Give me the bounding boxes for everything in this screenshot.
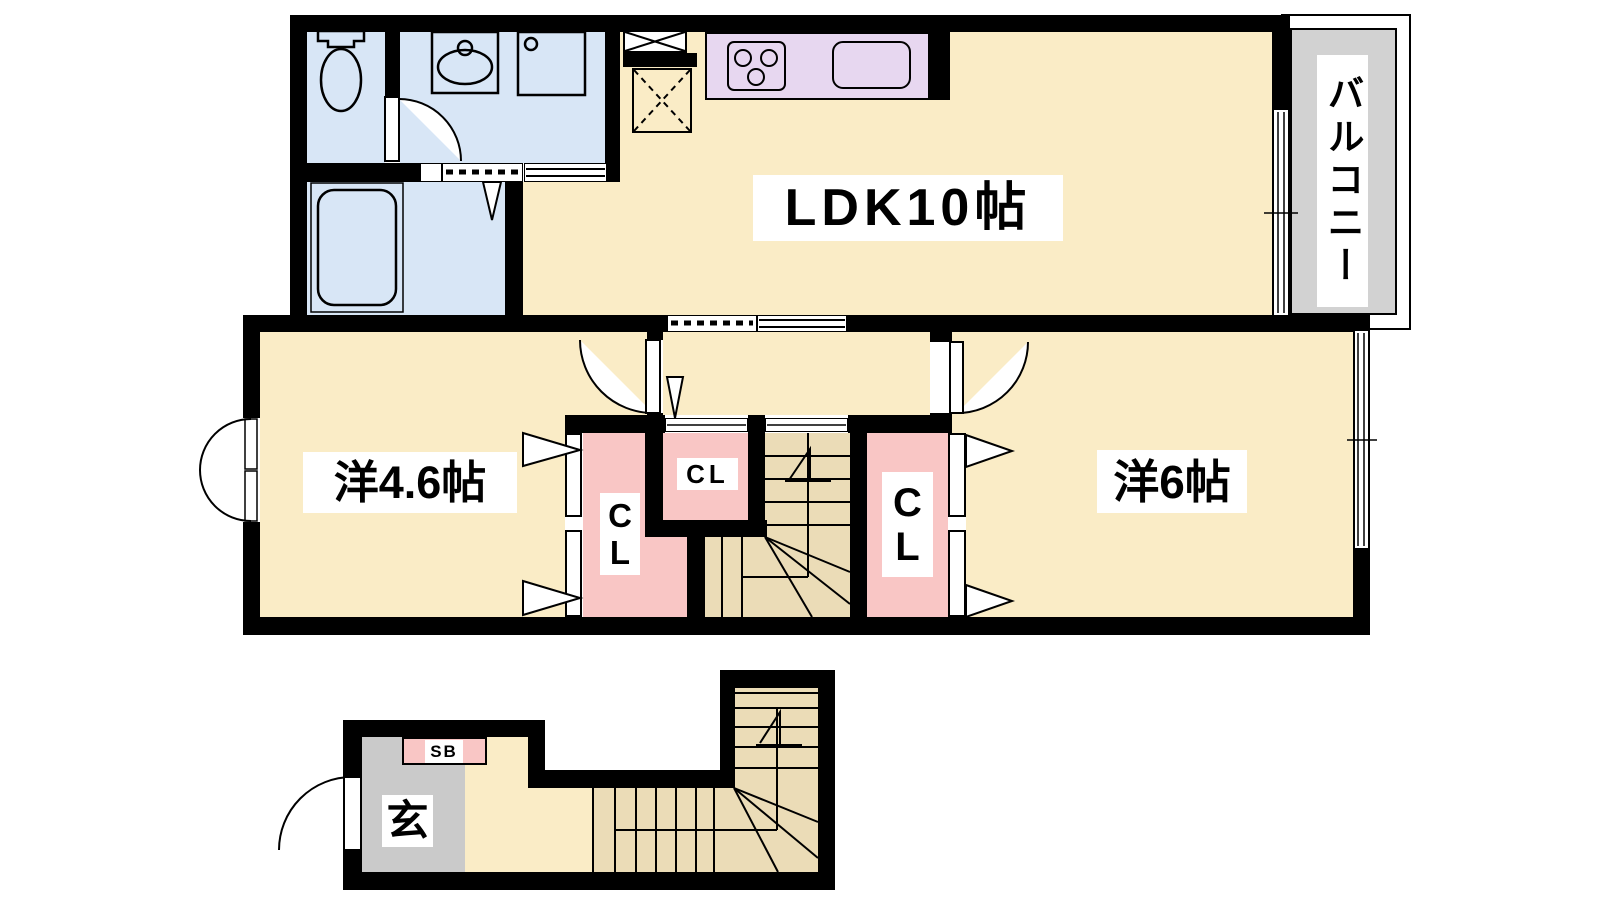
bathroom-floor xyxy=(307,182,505,315)
wall-ent-left-upper xyxy=(343,720,362,777)
entrance-label: 玄 xyxy=(382,795,433,847)
wall-room46-door-top xyxy=(647,332,663,340)
stairs1f-shaft-floor xyxy=(735,688,818,788)
hallway-floor xyxy=(663,332,930,415)
wall-ent-top xyxy=(343,720,545,737)
wall-mid-bottom xyxy=(243,617,1370,635)
closet-right-door-panel-1 xyxy=(948,433,966,517)
kitchen-counter xyxy=(705,32,930,100)
room6-right-window xyxy=(1353,331,1370,548)
closet-left-door-panel-2 xyxy=(565,530,582,617)
wall-mid-right-lower xyxy=(1353,548,1370,635)
wall-stairs-closetR xyxy=(850,415,867,635)
wall-room6-door-bottom xyxy=(930,413,952,433)
wall-kitchen-stub xyxy=(930,15,950,100)
stairs2f-upper-floor xyxy=(765,433,850,537)
closet-left-label: CL xyxy=(600,493,640,575)
wall-ldk-right xyxy=(1272,15,1290,110)
wall-washroom-bottom-right xyxy=(607,163,620,182)
washroom-window-strip xyxy=(524,163,607,182)
room6-label: 洋6帖 xyxy=(1097,450,1247,513)
room46-floor xyxy=(260,415,565,617)
wall-room6-door-top xyxy=(930,332,952,342)
closet-left-floor-ext xyxy=(645,537,687,617)
room46-left-window-opening xyxy=(243,418,260,522)
room6-floor-top xyxy=(952,332,1353,433)
wall-toilet-washroom xyxy=(385,32,400,97)
stairs1f-run-floor xyxy=(593,788,818,872)
closet-right-label: CL xyxy=(882,472,933,577)
toilet-room-floor xyxy=(307,32,385,163)
closet-center-door-strip xyxy=(665,418,748,432)
wall-top xyxy=(290,15,1290,32)
ldk-floor-lower-left xyxy=(523,182,620,315)
wall-washroom-bottom-left xyxy=(307,163,420,182)
ldk-label: LDK10帖 xyxy=(753,175,1063,241)
ldk-sliding-door xyxy=(667,315,757,332)
wall-washroom-right xyxy=(605,32,620,163)
washroom-floor xyxy=(400,32,605,163)
closet-right-door-panel-2 xyxy=(948,530,966,617)
wall-bath-right xyxy=(505,163,523,315)
wall-band-b xyxy=(748,415,765,433)
stairs2f-entry-strip xyxy=(765,418,848,432)
closet-center-label: CL xyxy=(677,458,738,490)
entrance-door-opening xyxy=(343,777,362,850)
room46-label: 洋4.6帖 xyxy=(303,452,517,513)
corridor-floor xyxy=(528,788,593,872)
wall-under-vent xyxy=(623,53,697,67)
room46-door-opening xyxy=(647,340,663,413)
closet-left-door-panel-1 xyxy=(565,433,582,517)
wall-mid-left-upper xyxy=(243,315,260,418)
floor-plan: LDK10帖 洋4.6帖 洋6帖 CL CL CL バルコニー 玄 SB xyxy=(0,0,1600,900)
wall-closetL-closetC xyxy=(645,433,663,520)
ldk-balcony-window xyxy=(1272,110,1290,315)
ldk-sliding-door-panel xyxy=(757,315,847,332)
wall-winder-left xyxy=(687,537,705,635)
refrigerator-space-box xyxy=(632,68,692,133)
washroom-door-jamb xyxy=(420,163,442,182)
wall-upper-left xyxy=(290,15,307,332)
washroom-sliding-door xyxy=(442,163,523,182)
wall-shaft-left xyxy=(720,688,735,788)
wall-shaft-right xyxy=(818,670,835,890)
vent-box xyxy=(623,30,687,53)
balcony-label: バルコニー xyxy=(1317,55,1368,307)
wall-closetC-stairs xyxy=(748,433,765,537)
room46-floor-top xyxy=(260,332,647,415)
wall-band-a xyxy=(565,415,665,433)
wall-ent-bottom xyxy=(343,872,835,890)
stairs2f-winder-floor xyxy=(705,537,850,617)
shoebox-label: SB xyxy=(425,740,463,763)
toilet-door-opening xyxy=(385,97,400,163)
wall-corridor-top xyxy=(528,770,735,788)
room6-door-opening xyxy=(930,342,952,413)
